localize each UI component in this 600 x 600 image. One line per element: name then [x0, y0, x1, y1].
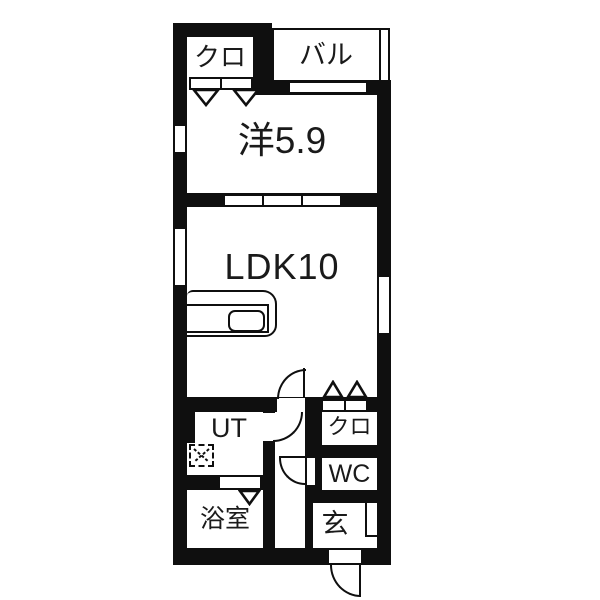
balcony-divider-line — [379, 28, 381, 80]
sliding-door-panel — [262, 196, 301, 205]
wall-left — [173, 23, 187, 565]
sliding-door-panel — [323, 401, 344, 410]
sliding-door-panel — [344, 401, 367, 410]
sliding-door-panel — [225, 196, 262, 205]
room-label-bathroom: 浴室 — [187, 507, 263, 532]
room-label-closet-top: クロ — [187, 44, 253, 70]
room-closet-top: クロ — [187, 37, 253, 77]
room-ldk: LDK10 — [187, 207, 377, 397]
window-bedroom-left — [173, 124, 187, 154]
room-label-balcony: バル — [274, 42, 378, 69]
wall-toilet-entrance — [305, 490, 377, 503]
sliding-door-closet-bottom — [321, 399, 368, 412]
room-label-western: 洋5.9 — [187, 122, 377, 159]
window-ldk-right — [377, 275, 391, 335]
doorway-ldk-corridor — [277, 398, 305, 412]
room-entrance: 玄 — [313, 503, 365, 548]
room-closet-bottom: クロ — [322, 412, 377, 445]
room-label-toilet: WC — [322, 462, 377, 487]
room-utility: UT — [195, 412, 263, 475]
window-balcony — [288, 81, 368, 94]
room-toilet: WC — [322, 458, 377, 490]
door-leaf-toilet — [279, 456, 305, 458]
room-label-closet-bottom: クロ — [322, 416, 377, 438]
entrance-step-notch — [365, 503, 377, 537]
sliding-door-bedroom — [223, 194, 342, 207]
wall-closet-toilet — [322, 445, 377, 458]
wall-closet-top-right — [253, 37, 272, 95]
sliding-door-panel — [220, 79, 251, 88]
floor-plan: クロ バル 洋5.9 LDK10 UT クロ WC 浴室 玄 — [0, 0, 600, 600]
room-balcony: バル — [274, 30, 378, 80]
door-swing-arc-utility — [273, 412, 303, 442]
entrance-door-opening — [327, 548, 363, 565]
room-label-ldk: LDK10 — [187, 249, 377, 285]
door-swing-arc-toilet — [279, 458, 305, 485]
sliding-door-panel — [301, 196, 340, 205]
wall-top — [173, 23, 272, 37]
room-western: 洋5.9 — [187, 95, 377, 193]
wall-entrance-corridor — [305, 503, 313, 548]
window-ldk-left — [173, 227, 187, 287]
room-label-utility: UT — [195, 415, 263, 442]
room-bathroom: 浴室 — [187, 490, 263, 548]
door-leaf-entrance — [359, 565, 361, 597]
room-label-entrance: 玄 — [313, 511, 357, 538]
wall-utility-pipe-chunk — [187, 412, 195, 443]
door-swing-arc-entrance — [330, 565, 361, 597]
sliding-door-bathroom — [218, 475, 262, 490]
sliding-door-panel — [191, 79, 220, 88]
doorway-toilet — [305, 456, 317, 487]
